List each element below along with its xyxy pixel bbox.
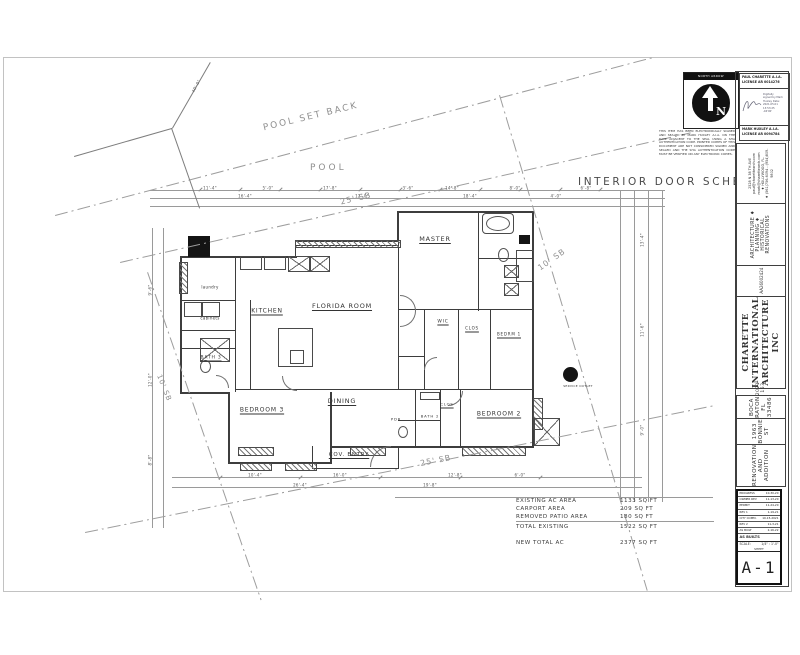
window-sill: [238, 447, 274, 456]
north-arrow-stamp: NORTH ARROW N: [683, 72, 739, 129]
wall-segment: [458, 309, 459, 390]
door-swing-arc: [216, 375, 229, 388]
ac-unit: [563, 367, 578, 382]
project-title: RENOVATION AND ADDITION: [737, 444, 785, 486]
room-label: KITCHEN: [251, 308, 283, 315]
dimension-line-v: [620, 190, 621, 502]
room-label: BATH 3: [200, 356, 221, 361]
floor-plan: MASTERKITCHENFLORIDA ROOMWICCLOSBEDRM 1B…: [0, 0, 800, 655]
toilet: [498, 248, 509, 262]
company-phone: ♦ (561)756-6094 - (954)809-9802: [765, 146, 774, 201]
company-address-block: 2528 N 38 TH AVE paul@charettearch.com m…: [737, 144, 785, 203]
hatch-box: [504, 265, 519, 278]
toilet: [398, 426, 408, 438]
north-letter: N: [716, 105, 726, 118]
wall-segment: [312, 468, 399, 469]
wall-segment: [397, 211, 399, 242]
dimension-line-v: [648, 190, 649, 502]
revision-date: 2-16-22: [768, 528, 779, 533]
dimension-label: 12'-0": [148, 373, 153, 387]
area-row-label: TOTAL EXISTING: [516, 524, 569, 530]
titleblock-sheet-block: PROGRESS10-30-20OWNER REV11-13-20PERMIT1…: [736, 489, 782, 585]
dimension-label: 14'-8": [445, 186, 459, 191]
sheet-number: A-1: [738, 552, 780, 583]
annotation-label: SERVICE OUTLET: [563, 384, 593, 388]
hatch-box: [310, 256, 330, 272]
wall-segment: [398, 242, 399, 390]
dimension-label: 11'-4": [203, 186, 217, 191]
revision-date: 11-24-20: [766, 503, 779, 508]
project-address: 1963 BONNIE ST: [737, 418, 785, 444]
revision-label: PERMIT: [740, 503, 750, 508]
as-builts-label: AS BUILTS: [738, 534, 780, 542]
area-row-value: 180 SQ FT: [620, 514, 653, 520]
room-label: DINING: [328, 397, 356, 405]
company-license-number: AA26002424: [737, 265, 785, 297]
bathtub-basin: [486, 216, 510, 231]
revision-date: 1-19-21: [768, 510, 779, 515]
area-row-label: CARPORT AREA: [516, 506, 565, 512]
room-label: BEDROOM 2: [477, 411, 521, 418]
revision-date: 10-15-2021: [762, 516, 778, 521]
dimension-label: 11'-6": [640, 323, 645, 337]
dimension-label: 16'-0": [333, 473, 347, 478]
dimension-label: 16'-4": [238, 194, 252, 199]
site-line: [172, 62, 211, 128]
site-line: [85, 405, 713, 532]
wall-segment: [180, 300, 236, 301]
north-arrow-title: NORTH ARROW: [684, 73, 738, 80]
area-row-label: EXISTING AC AREA: [516, 498, 576, 504]
wall-segment: [490, 309, 491, 390]
door-swing-arc: [400, 295, 416, 311]
dimension-label: 9'-0": [640, 425, 645, 436]
site-line: [74, 128, 172, 157]
wall-segment: [398, 420, 441, 421]
area-row-value: 1522 SQ FT: [620, 524, 657, 530]
window-sill: [285, 463, 317, 471]
room-label: FLORIDA ROOM: [312, 302, 372, 310]
dimension-label: 6'-0": [515, 473, 526, 478]
dimension-label: 9'-6": [148, 285, 153, 296]
dimension-line-h: [172, 487, 642, 488]
dimension-line-h: [150, 206, 665, 207]
titleblock-project: RENOVATION AND ADDITION 1963 BONNIE ST B…: [736, 395, 786, 487]
area-row-value: 209 SQ FT: [620, 506, 653, 512]
wall-segment: [235, 389, 533, 390]
dimension-label: 12'-8": [448, 473, 462, 478]
room-label: PDR: [391, 417, 401, 422]
room-label: CLOS: [465, 326, 479, 331]
dimension-label: 40'-0": [191, 79, 202, 94]
company-name: CHARETTE INTERNATIONAL ARCHITECTURE INC: [737, 297, 785, 388]
fixture-box: [264, 256, 286, 270]
revision-label: CITY COMM.: [740, 516, 757, 521]
dimension-label: 26'-4": [293, 483, 307, 488]
project-job-number: 2021-153: [737, 380, 785, 396]
revision-label: REV 2: [740, 522, 748, 527]
wall-segment: [478, 212, 479, 311]
revision-date: 10-30-20: [766, 491, 779, 496]
room-label: MASTER: [419, 235, 451, 243]
revision-date: 11-3-21: [768, 522, 779, 527]
area-total-rule: [516, 521, 714, 522]
room-label: COV. ENTRY: [329, 452, 369, 458]
project-city: BOCA RATON FL 33486: [737, 395, 785, 418]
wall-segment: [235, 258, 236, 392]
area-row-label: REMOVED PATIO AREA: [516, 514, 588, 520]
room-label: CLOS: [440, 402, 453, 407]
electronic-seal-disclaimer: THIS ITEM HAS BEEN ELECTRONICALLY SIGNED…: [659, 130, 735, 157]
dimension-label: 8'-0": [510, 186, 521, 191]
annotation-label: laundry: [201, 285, 218, 290]
fixture-box: [184, 302, 202, 317]
dimension-label: 10'-4": [248, 473, 262, 478]
revision-label: OWNER REV: [740, 497, 757, 502]
north-arrow-icon: N: [692, 84, 730, 122]
north-arrow-stem-icon: [708, 97, 713, 111]
fixture-box: [290, 350, 304, 364]
annotation-label: cabinets: [200, 316, 219, 321]
window-sill: [295, 240, 401, 248]
window-sill: [240, 463, 272, 471]
room-label: BATH 2: [421, 414, 440, 419]
wall-segment: [415, 390, 416, 447]
revision-date: 11-13-20: [766, 497, 779, 502]
hatch-box: [534, 418, 560, 446]
door-swing-arc: [424, 357, 437, 370]
wall-segment: [398, 211, 534, 213]
titleblock-company: CHARETTE INTERNATIONAL ARCHITECTURE INC …: [736, 143, 786, 389]
dimension-label: 4'-0": [551, 194, 562, 199]
solid-fill: [519, 235, 530, 244]
dimension-line-h: [172, 477, 642, 478]
fixture-box: [240, 256, 262, 270]
dimension-label: 19'-8": [423, 483, 437, 488]
dimension-label: 13'-4": [640, 233, 645, 247]
dimension-line-h: [150, 198, 665, 199]
fixture-box: [420, 392, 440, 400]
company-services: ARCHITECTURE ♦ PLANNING ♦ HISTORICAL REN…: [737, 203, 785, 265]
area-row-label: NEW TOTAL AC: [516, 540, 564, 546]
wall-segment: [228, 392, 230, 464]
dimension-label: 8'-8": [148, 455, 153, 466]
room-label: WIC: [437, 320, 448, 325]
wall-segment: [440, 390, 441, 447]
area-row-value: 2377 SQ FT: [620, 540, 657, 546]
wall-segment: [398, 309, 533, 310]
site-line: [147, 272, 261, 600]
hatch-box: [504, 283, 519, 296]
room-label: BEDRM 1: [497, 332, 521, 337]
dimension-line-v: [662, 190, 663, 502]
wall-segment: [398, 356, 425, 357]
door-swing-arc: [400, 311, 416, 327]
revision-label: AS BUILT: [740, 528, 752, 533]
wall-segment: [180, 330, 236, 331]
area-row-value: 1133 SQ FT: [620, 498, 657, 504]
revision-table: PROGRESS10-30-20OWNER REV11-13-20PERMIT1…: [738, 491, 780, 534]
window-sill: [179, 262, 188, 294]
dimension-line-v: [634, 190, 635, 502]
revision-label: REV 1: [740, 510, 748, 515]
dimension-label: 5'-0": [263, 186, 274, 191]
hatch-box: [288, 256, 310, 272]
dimension-label: 3'-6": [403, 186, 414, 191]
revision-label: PROGRESS: [740, 491, 755, 496]
dimension-label: 17'-8": [323, 186, 337, 191]
site-line: [171, 128, 200, 209]
wall-segment: [180, 392, 230, 394]
wall-segment: [398, 446, 399, 469]
wall-segment: [424, 309, 425, 390]
drawing-sheet-canvas: MASTERKITCHENFLORIDA ROOMWICCLOSBEDRM 1B…: [0, 0, 800, 655]
pool-label: POOL: [310, 163, 347, 173]
dimension-label: 18'-4": [463, 194, 477, 199]
room-label: BEDROOM 3: [240, 407, 284, 414]
